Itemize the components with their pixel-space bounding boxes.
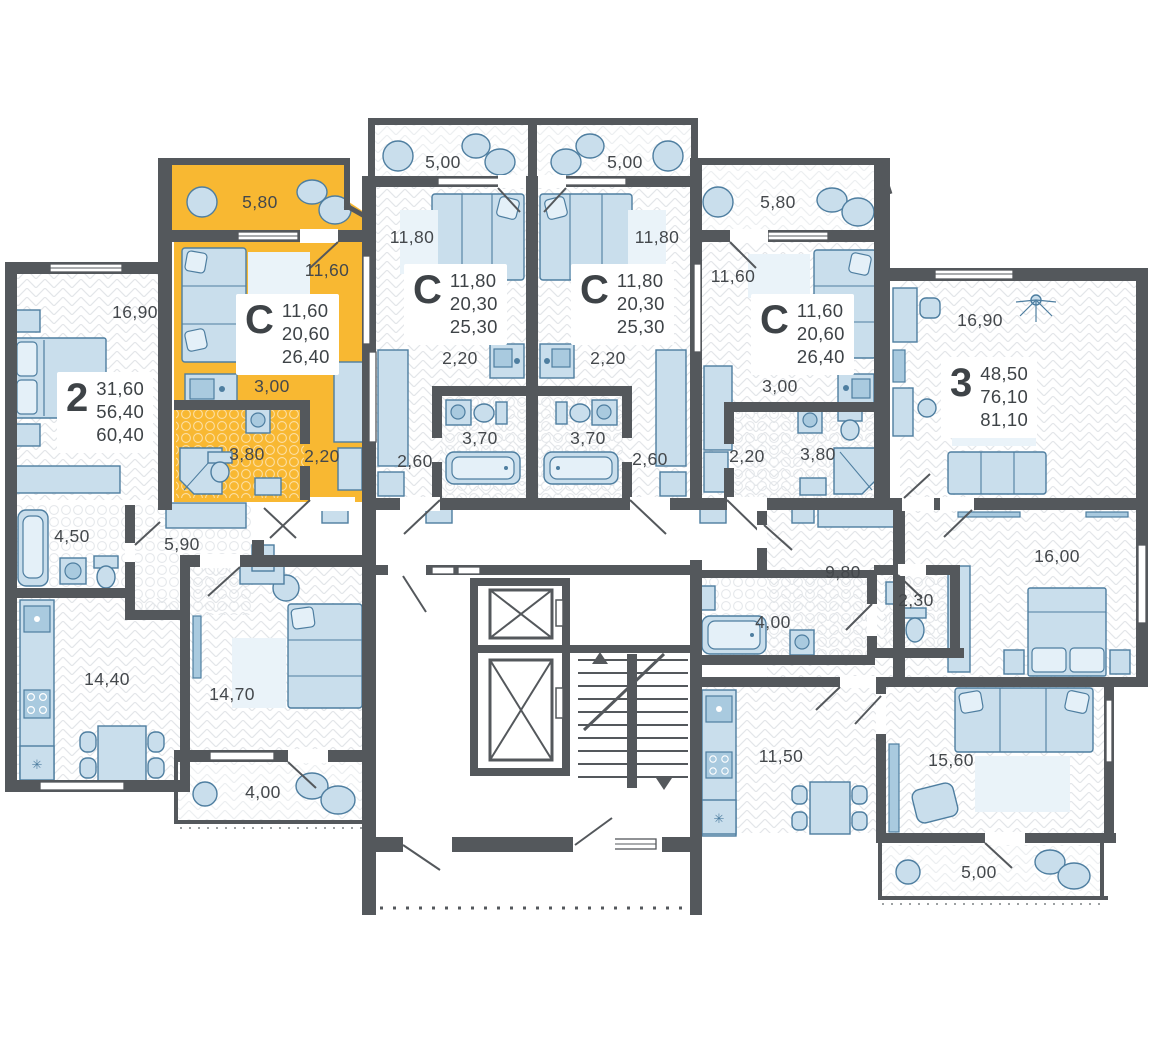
apartment-type-label: С [413,271,442,309]
room-area-label: 5,80 [760,192,796,212]
washing-machine-icon [246,408,270,433]
area-value: 11,60 [797,300,845,323]
area-value: 56,40 [96,401,144,424]
room-area-label: 3,80 [800,444,836,464]
room-area-label: 11,60 [711,266,756,286]
bathtub-icon [544,452,618,484]
wardrobe-icon [166,503,246,528]
washing-machine-icon [592,400,617,425]
room-area-label: 5,80 [242,192,278,212]
area-value: 76,10 [980,386,1028,409]
apartment-card-studio-right[interactable]: С 11,60 20,60 26,40 [751,294,854,375]
apartment-type-label: 2 [66,379,88,417]
chair-icon [842,198,874,226]
room-area-label: 3,00 [762,376,798,396]
room-area-label: 5,00 [961,862,997,882]
sink-icon [700,586,715,610]
area-value: 48,50 [980,363,1028,386]
room-area-label: 11,80 [635,227,680,247]
room-area-label: 15,60 [928,750,974,770]
room-area-label: 2,20 [442,348,478,368]
plant-icon [383,141,413,171]
room-area-label: 4,00 [755,612,791,632]
area-value: 20,30 [617,293,665,316]
apartment-type-label: С [245,301,274,339]
plant-icon [703,187,733,217]
apartment-type-label: С [580,271,609,309]
area-value: 11,80 [617,270,665,293]
room-area-label: 16,90 [112,302,158,322]
wardrobe-icon [378,350,408,466]
toilet-icon [474,402,507,424]
sink-icon [800,478,826,495]
room-area-label: 5,00 [425,152,461,172]
area-value: 25,30 [450,316,498,339]
kitchen-sink-icon [540,344,574,378]
apartment-card-studio-mid-right[interactable]: С 11,80 20,30 25,30 [571,264,674,345]
apartment-type-label: С [760,301,789,339]
area-value: 11,60 [282,300,330,323]
area-value: 20,60 [797,323,845,346]
svg-text:✳: ✳ [714,811,725,826]
area-value: 81,10 [980,409,1028,432]
room-area-label: 2,30 [898,590,934,610]
plant-icon [187,187,217,217]
bathtub-icon [18,510,48,586]
kitchen-sink-icon [838,374,874,403]
curtain [1086,512,1128,517]
dresser-icon [338,448,362,490]
elevator-icon [490,590,563,638]
room-area-label: 2,20 [304,446,340,466]
chair-icon [321,786,355,814]
room-area-label: 2,20 [729,446,765,466]
room-area-label: 14,70 [209,684,255,704]
rug [748,254,810,298]
washing-machine-icon [790,630,814,655]
shower-icon [834,448,876,494]
tv-icon [193,616,201,678]
area-value: 26,40 [282,346,330,369]
sink-icon [255,478,281,495]
area-value: 20,30 [450,293,498,316]
sofa-icon [948,452,1046,494]
room-area-label: 16,00 [1034,546,1080,566]
stairs-icon [578,652,688,790]
toilet-icon [904,608,926,642]
washing-machine-icon [446,400,471,425]
shelf-icon [893,350,905,382]
chair-icon [551,149,581,175]
chair-icon [1058,863,1090,889]
plant-icon [896,860,920,884]
rug [248,252,310,296]
svg-text:✳: ✳ [32,757,43,772]
area-value: 26,40 [797,346,845,369]
elevator-icon [490,660,563,760]
chair-icon [462,134,490,158]
kitchen-sink-icon [490,344,524,378]
room-area-label: 2,60 [397,451,433,471]
plant-icon [653,141,683,171]
apartment-card-studio-mid-left[interactable]: С 11,80 20,30 25,30 [404,264,507,345]
wardrobe-icon [893,388,913,436]
area-value: 25,30 [617,316,665,339]
tv-icon [889,744,899,832]
plant-icon [193,782,217,806]
kitchen-sink-icon [185,374,237,404]
washing-machine-icon [60,558,86,584]
room-area-label: 3,70 [570,428,606,448]
floor-plan-drawing: ✳ [0,0,1150,1040]
area-value: 20,60 [282,323,330,346]
room-area-label: 5,90 [164,534,200,554]
room-area-label: 2,20 [590,348,626,368]
dresser-icon [378,472,404,496]
area-value: 60,40 [96,424,144,447]
room-area-label: 11,80 [390,227,435,247]
floor-plan: ✳ [0,0,1150,1040]
room-area-label: 5,00 [607,152,643,172]
room-area-label: 4,00 [245,782,281,802]
chair-icon [576,134,604,158]
kitchen-counter-icon: ✳ [20,600,54,780]
room-area-label: 2,60 [632,449,668,469]
room-area-label: 4,50 [54,526,90,546]
bathtub-icon [446,452,520,484]
apartment-type-label: 3 [950,364,972,402]
room-area-label: 14,40 [84,669,130,689]
rug [975,756,1070,812]
table-icon [918,399,936,417]
area-value: 11,80 [450,270,498,293]
sofa-icon [288,604,362,708]
apartment-card-studio-highlighted[interactable]: С 11,60 20,60 26,40 [236,294,339,375]
wardrobe-icon [14,466,120,493]
apartment-card-3room[interactable]: 3 48,50 76,10 81,10 [941,357,1037,438]
kitchen-counter-icon: ✳ [702,690,736,836]
room-area-label: 3,00 [254,376,290,396]
sofa-icon [955,688,1093,752]
apartment-card-2room[interactable]: 2 31,60 56,40 60,40 [57,372,153,453]
room-area-label: 16,90 [957,310,1003,330]
room-area-label: 3,80 [229,444,265,464]
room-area-label: 9,80 [825,562,861,582]
dresser-icon [660,472,686,496]
chair-icon [485,149,515,175]
room-area-label: 11,50 [759,746,804,766]
room-area-label: 3,70 [462,428,498,448]
room-area-label: 11,60 [305,260,350,280]
area-value: 31,60 [96,378,144,401]
